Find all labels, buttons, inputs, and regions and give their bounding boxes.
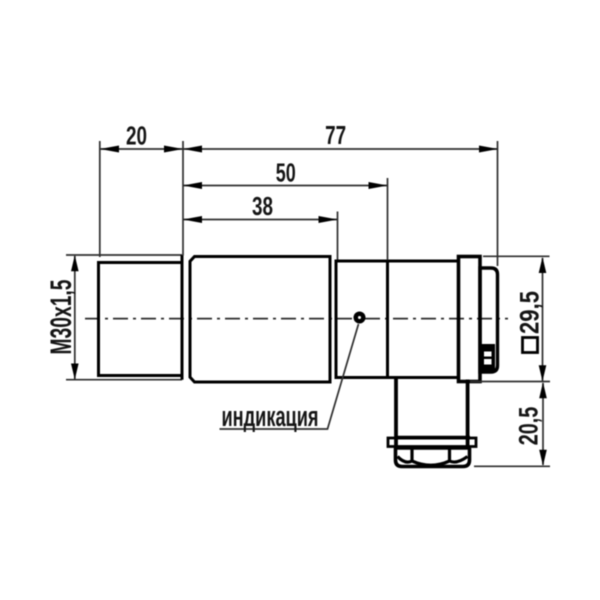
svg-text:M30x1,5: M30x1,5 (45, 280, 78, 355)
svg-text:29,5: 29,5 (515, 291, 545, 334)
svg-text:77: 77 (325, 120, 346, 150)
svg-text:индикация: индикация (222, 401, 319, 433)
svg-text:38: 38 (252, 191, 273, 221)
svg-text:20: 20 (126, 120, 147, 150)
svg-text:20,5: 20,5 (514, 407, 544, 446)
svg-text:50: 50 (276, 158, 296, 188)
